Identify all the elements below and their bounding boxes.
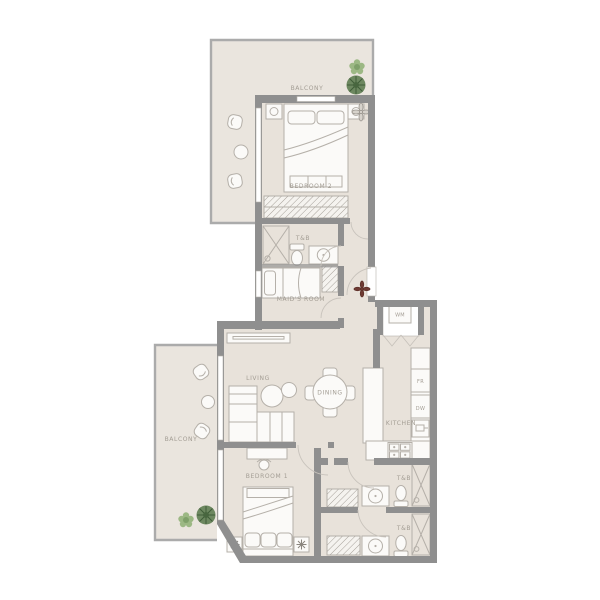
appliance-label-fr: FR [417, 379, 424, 385]
headboard [243, 549, 293, 556]
pillow-icon [265, 271, 276, 295]
room-label-maids-room: MAID'S ROOM [277, 296, 325, 303]
closet-icon [327, 536, 360, 555]
window-icon [297, 97, 335, 102]
room-label-bedroom2: BEDROOM 2 [290, 183, 332, 190]
window-icon [256, 271, 261, 297]
pillow-icon [277, 533, 292, 547]
balcony-lower: BALCONY [155, 345, 217, 540]
armchair-icon [227, 173, 243, 189]
room-label-tb-middle: T&B [295, 235, 310, 242]
sink-icon [309, 246, 338, 264]
room-label-living: LIVING [246, 375, 270, 382]
armchair-icon [227, 114, 243, 130]
washing-machine-icon: WM [389, 305, 411, 323]
pillow-icon [288, 111, 315, 124]
room-label-balcony-top: BALCONY [291, 85, 324, 92]
appliance-label-wm: WM [395, 313, 405, 319]
nightstand-icon [294, 537, 309, 552]
pillow-icon [245, 533, 260, 547]
dresser-icon [247, 448, 287, 459]
double-bed-icon [284, 104, 348, 192]
pillow-icon [261, 533, 276, 547]
window-icon [218, 450, 223, 520]
stool-icon [259, 460, 269, 470]
sliding-door-icon [218, 356, 223, 440]
pillow-icon [317, 111, 344, 124]
room-label-balcony-lower: BALCONY [165, 436, 198, 443]
side-table-icon [202, 396, 215, 409]
room-label-tb2: T&B [396, 525, 411, 532]
coffee-table-icon [282, 383, 297, 398]
fridge-icon: FR [411, 369, 430, 392]
wardrobe-icon [264, 196, 348, 218]
sink-icon [362, 486, 389, 506]
nightstand-icon [266, 104, 282, 119]
plant-icon [347, 76, 366, 95]
shelf-icon [322, 266, 338, 292]
room-label-dining: DINING [317, 390, 342, 397]
tv-console-icon [227, 333, 290, 343]
lamp-icon [297, 540, 307, 550]
room-label-kitchen: KITCHEN [386, 420, 416, 427]
side-table-icon [234, 145, 248, 159]
sink-icon [362, 536, 389, 556]
coffee-table-icon [261, 385, 283, 407]
double-bed-icon [243, 487, 293, 556]
room-label-bedroom1: BEDROOM 1 [246, 473, 288, 480]
closet-icon [327, 489, 358, 507]
toilet-icon [290, 244, 304, 266]
appliance-label-dw: DW [416, 406, 425, 412]
plant-icon [197, 506, 216, 525]
floor-plan-page: BALCONY BALCONY [0, 0, 600, 600]
dishwasher-icon: DW [411, 395, 430, 418]
room-label-tb1: T&B [396, 475, 411, 482]
floor-plan: BALCONY BALCONY [0, 0, 600, 600]
kitchen-island-icon [363, 368, 383, 443]
sliding-door-icon [256, 108, 261, 202]
single-bed-icon [262, 268, 320, 298]
